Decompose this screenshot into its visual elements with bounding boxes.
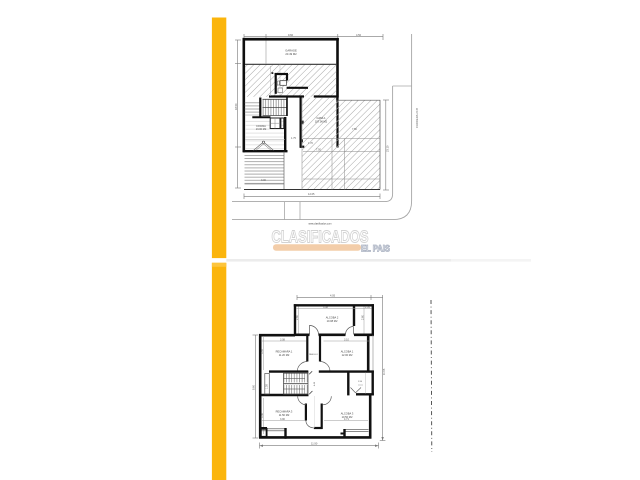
svg-text:7.50: 7.50: [316, 148, 321, 151]
svg-text:3.00: 3.00: [261, 179, 266, 182]
svg-text:4.05: 4.05: [330, 294, 336, 298]
svg-text:4.71: 4.71: [344, 418, 349, 421]
svg-text:12.05: 12.05: [308, 192, 315, 196]
svg-text:3.08: 3.08: [323, 306, 328, 309]
svg-text:GARAGE: GARAGE: [285, 49, 297, 53]
svg-text:12.00 M2: 12.00 M2: [342, 353, 353, 357]
svg-text:3.55: 3.55: [261, 349, 264, 354]
svg-text:1.70: 1.70: [308, 142, 313, 145]
svg-text:1.00: 1.00: [266, 384, 269, 389]
svg-text:4.40: 4.40: [314, 381, 316, 386]
svg-text:18.50: 18.50: [234, 103, 238, 110]
svg-text:11.20 M2: 11.20 M2: [279, 353, 290, 357]
svg-text:3.90: 3.90: [280, 418, 285, 421]
svg-text:11.55: 11.55: [382, 368, 386, 375]
svg-text:1.75: 1.75: [291, 137, 296, 140]
svg-text:PASILLO: PASILLO: [309, 353, 318, 356]
svg-text:107.06 M2: 107.06 M2: [315, 119, 328, 123]
svg-text:1.05: 1.05: [365, 306, 370, 309]
svg-text:3.45: 3.45: [261, 413, 264, 418]
svg-text:11.90: 11.90: [311, 442, 318, 446]
svg-text:7.50: 7.50: [352, 128, 357, 131]
svg-text:23.10: 23.10: [386, 145, 390, 152]
svg-text:10.08 M2: 10.08 M2: [327, 319, 338, 323]
svg-text:CARRERA 24 B: CARRERA 24 B: [415, 108, 419, 128]
svg-text:EL PAIS: EL PAIS: [361, 244, 390, 254]
svg-text:3.10: 3.10: [344, 338, 349, 341]
svg-text:8.60: 8.60: [252, 384, 256, 390]
svg-text:13.00 M2: 13.00 M2: [256, 128, 267, 131]
svg-text:9.60: 9.60: [288, 33, 294, 37]
svg-text:4.50: 4.50: [356, 33, 362, 37]
svg-text:11.50 M2: 11.50 M2: [279, 413, 290, 417]
svg-text:2.60: 2.60: [296, 315, 299, 320]
svg-text:3.08: 3.08: [280, 338, 285, 341]
svg-text:www.clasificados.com: www.clasificados.com: [309, 221, 333, 225]
svg-text:CLASIFICADOS: CLASIFICADOS: [272, 227, 369, 247]
svg-text:23.49 M2: 23.49 M2: [285, 52, 297, 56]
svg-text:2.60: 2.60: [361, 315, 364, 320]
svg-text:1.90: 1.90: [358, 381, 363, 383]
